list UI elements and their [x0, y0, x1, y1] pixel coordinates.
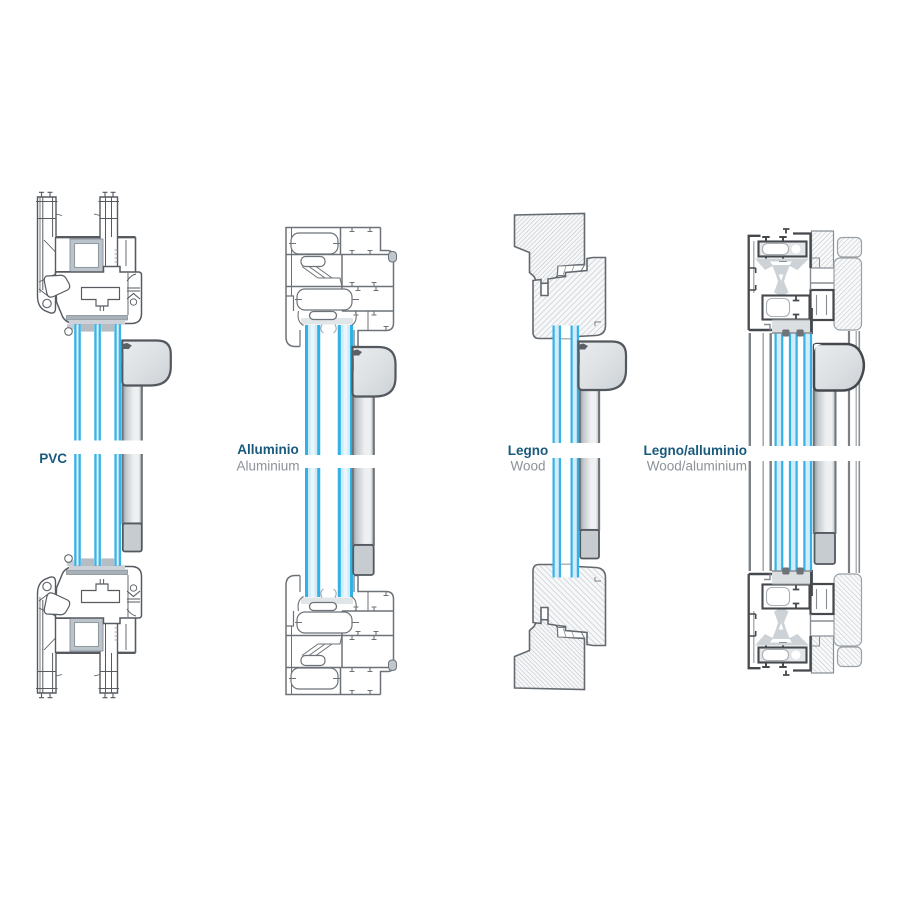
svg-text:Legno: Legno	[508, 443, 549, 458]
svg-text:PVC: PVC	[39, 451, 67, 466]
svg-text:Wood: Wood	[510, 459, 545, 474]
svg-text:Wood/aluminium: Wood/aluminium	[647, 459, 747, 474]
svg-text:Aluminium: Aluminium	[236, 459, 299, 474]
svg-text:Alluminio: Alluminio	[237, 442, 299, 457]
svg-text:Legno/alluminio: Legno/alluminio	[644, 443, 748, 458]
